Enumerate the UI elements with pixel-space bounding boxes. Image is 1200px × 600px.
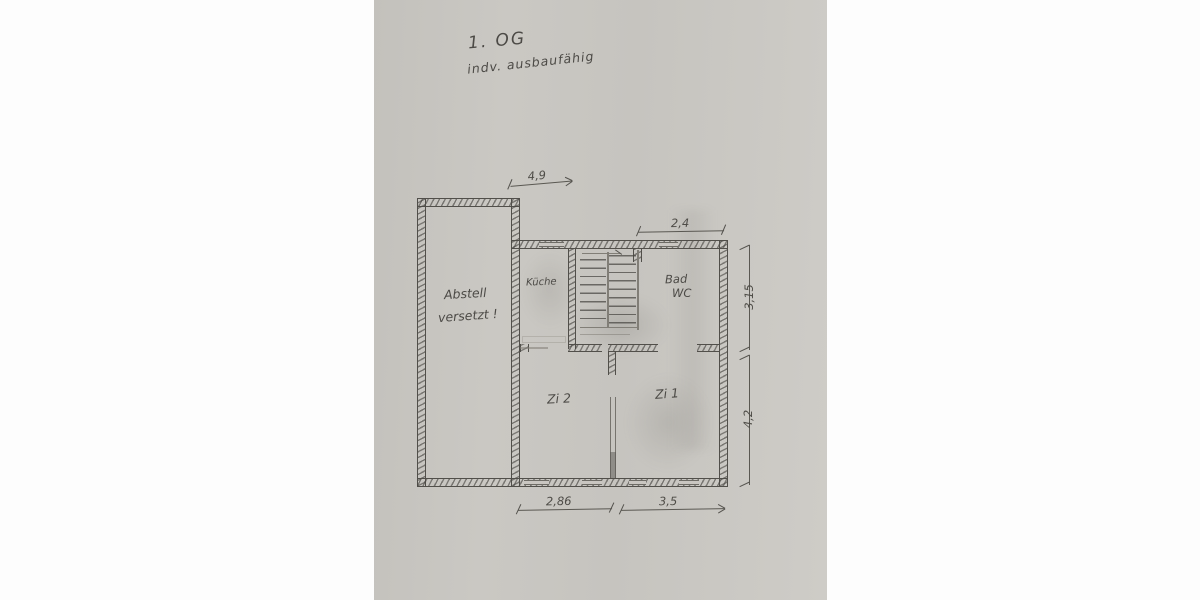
room-label-zi1: Zi 1: [655, 386, 680, 401]
wall-middle-left-line: [520, 347, 548, 349]
dimension-line: [518, 508, 612, 511]
stairs-direction-arrow: [582, 253, 620, 254]
window-segment: [524, 480, 549, 485]
dimension-value: 2,86: [546, 494, 572, 508]
wall-abstell-left: [417, 198, 426, 487]
dimension-value: 3,15: [742, 284, 756, 310]
dimension-line: [638, 230, 724, 233]
stairs-divider-line: [607, 252, 609, 328]
dimension-value: 2,4: [671, 216, 690, 230]
wall-main-bottom: [417, 478, 728, 487]
dimension-tick: [721, 224, 727, 235]
dimension-top: 4,9: [501, 162, 585, 195]
room-label-bad: Bad: [665, 273, 688, 286]
wall-middle-center: [608, 344, 658, 352]
dimension-value: 4,9: [527, 168, 546, 184]
kitchen-counter-sketch: [522, 336, 566, 343]
dimension-value: 4,2: [741, 410, 755, 428]
dimension-line: [621, 508, 725, 511]
window-segment: [659, 242, 678, 247]
wall-main-right: [719, 240, 728, 487]
wall-hall-stub: [608, 352, 616, 375]
stairs-flight-left: [580, 259, 606, 324]
paper-photo: 1. OG indv. ausbaufähig Abstell: [374, 0, 827, 600]
window-segment: [582, 480, 602, 485]
dimension-right-lower: 4,2: [737, 352, 763, 490]
stairwell-right-line: [637, 250, 639, 330]
wall-abstell-top: [417, 198, 520, 207]
wall-stairwell-left: [568, 249, 576, 349]
window-segment: [679, 480, 699, 485]
dimension-tick: [507, 179, 513, 190]
stairs-flight-right: [608, 255, 636, 328]
room-label-kueche: Küche: [526, 276, 557, 288]
wall-stairwell-foot: [568, 344, 602, 352]
stairs-landing-line: [580, 327, 637, 328]
stairs-landing-line-2: [580, 334, 630, 335]
dimension-right-upper: 3,15: [737, 242, 763, 354]
dimension-tick: [609, 502, 615, 513]
wall-main-top: [511, 240, 728, 249]
dimension-bottom-left: 2,86: [514, 492, 617, 520]
wall-zi-divider-dark: [610, 452, 616, 478]
room-label-abstell: Abstell: [444, 286, 487, 302]
window-segment: [629, 480, 646, 485]
page-subtitle: indv. ausbaufähig: [467, 49, 595, 76]
room-label-wc: WC: [672, 287, 691, 300]
room-label-abstell-note: versetzt !: [438, 307, 499, 325]
page-title: 1. OG: [467, 29, 527, 53]
dimension-bottom-right: 3,5: [617, 492, 731, 520]
dimension-value: 3,5: [659, 494, 678, 508]
dimension-top-right: 2,4: [635, 215, 728, 241]
window-segment: [539, 242, 564, 247]
wall-middle-right: [697, 344, 719, 352]
room-label-zi2: Zi 2: [547, 391, 572, 406]
